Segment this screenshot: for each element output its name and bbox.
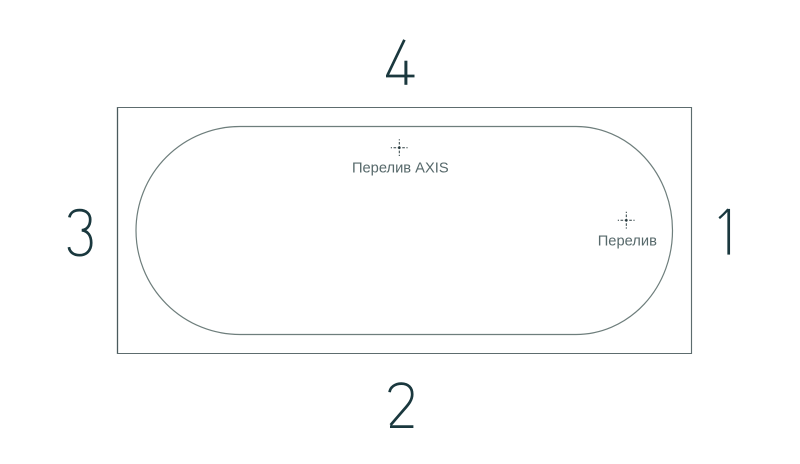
svg-text:Перелив: Перелив (598, 233, 657, 249)
svg-text:Перелив AXIS: Перелив AXIS (352, 161, 449, 177)
